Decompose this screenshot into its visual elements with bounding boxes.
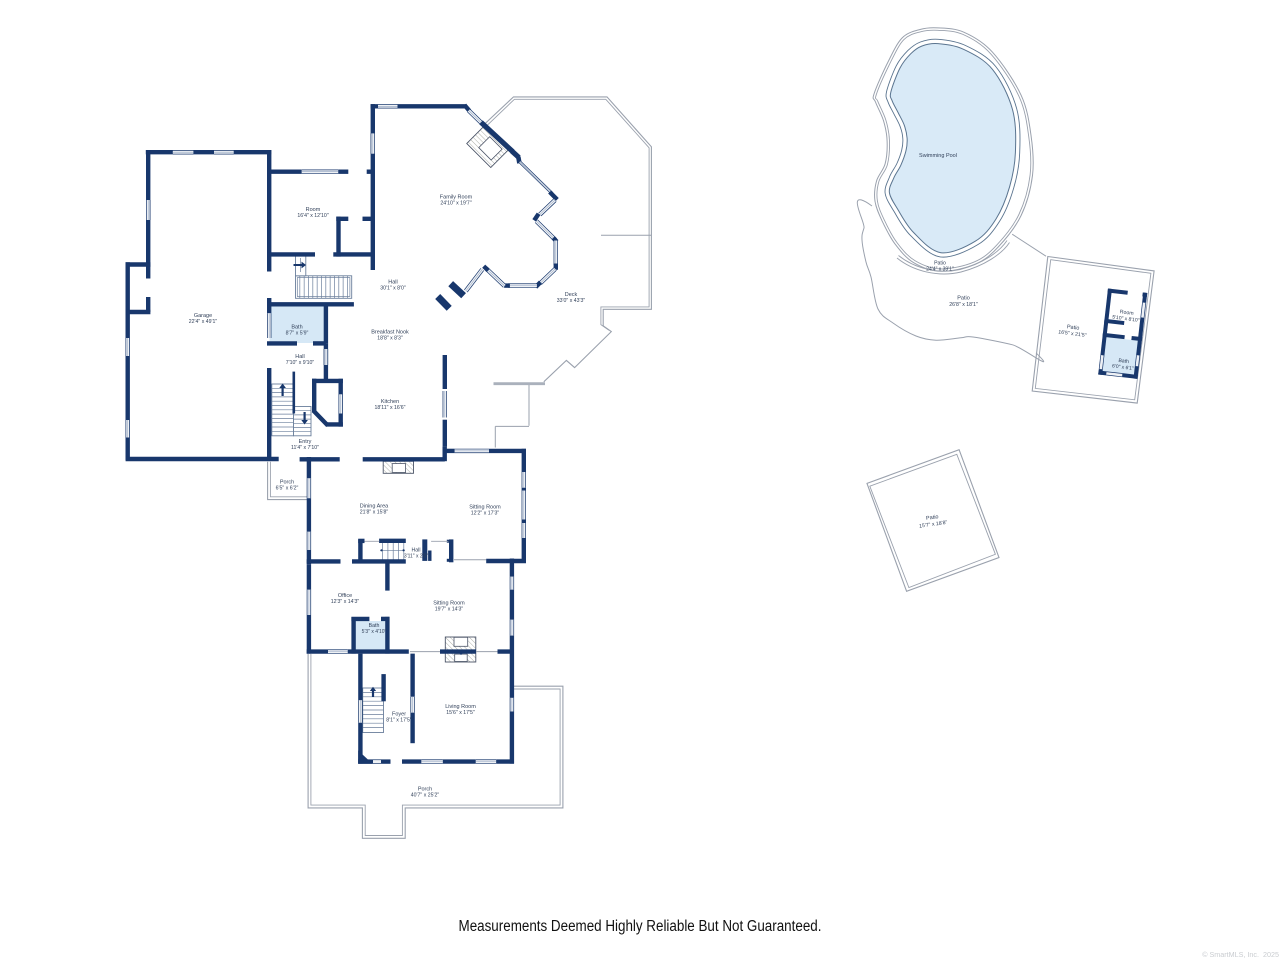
svg-text:33'0" x 43'3": 33'0" x 43'3" xyxy=(557,298,586,304)
svg-text:22'4" x 49'1": 22'4" x 49'1" xyxy=(189,319,218,325)
svg-text:Entry: Entry xyxy=(299,439,312,445)
svg-text:Living Room: Living Room xyxy=(445,704,476,710)
svg-text:19'7" x 14'3": 19'7" x 14'3" xyxy=(435,607,464,613)
svg-text:30'1" x 8'0": 30'1" x 8'0" xyxy=(380,286,406,292)
svg-text:7'10" x 9'10": 7'10" x 9'10" xyxy=(286,360,315,366)
svg-text:16'4" x 12'10": 16'4" x 12'10" xyxy=(297,213,328,219)
svg-text:Patio: Patio xyxy=(957,296,970,302)
svg-text:15'7" x 18'8": 15'7" x 18'8" xyxy=(919,520,948,530)
svg-text:Porch: Porch xyxy=(280,480,294,486)
svg-text:Hall: Hall xyxy=(388,280,397,286)
svg-text:Office: Office xyxy=(338,593,352,599)
svg-text:6'5" x 6'2": 6'5" x 6'2" xyxy=(276,486,299,492)
svg-text:Swimming Pool: Swimming Pool xyxy=(919,153,957,159)
svg-text:Foyer: Foyer xyxy=(392,712,406,718)
svg-text:26'8" x 18'1": 26'8" x 18'1" xyxy=(949,302,978,308)
svg-text:Sitting Room: Sitting Room xyxy=(469,505,501,511)
svg-text:12'2" x 17'3": 12'2" x 17'3" xyxy=(471,511,500,517)
svg-text:Room: Room xyxy=(306,207,321,213)
svg-text:24'10" x 19'7": 24'10" x 19'7" xyxy=(440,201,471,207)
svg-text:Bath: Bath xyxy=(291,325,302,331)
svg-text:Breakfast Nook: Breakfast Nook xyxy=(371,330,409,336)
svg-text:16'5" x 21'5": 16'5" x 21'5" xyxy=(1058,329,1087,339)
svg-text:Sitting Room: Sitting Room xyxy=(433,601,465,607)
svg-text:18'8" x 8'3": 18'8" x 8'3" xyxy=(377,336,403,342)
svg-text:8'7" x 5'9": 8'7" x 5'9" xyxy=(286,331,309,337)
svg-text:Garage: Garage xyxy=(194,313,212,319)
svg-text:5'3" x 4'10": 5'3" x 4'10" xyxy=(362,629,387,635)
svg-text:40'7" x 25'2": 40'7" x 25'2" xyxy=(411,793,440,799)
svg-text:15'6" x 17'5": 15'6" x 17'5" xyxy=(446,710,475,716)
svg-text:11'4" x 7'10": 11'4" x 7'10" xyxy=(291,445,319,451)
svg-text:Porch: Porch xyxy=(418,787,432,793)
svg-text:Hall: Hall xyxy=(295,354,304,360)
svg-text:18'11" x 16'6": 18'11" x 16'6" xyxy=(375,405,406,411)
svg-text:12'3" x 14'3": 12'3" x 14'3" xyxy=(331,599,360,605)
svg-text:24'4" x 39'1": 24'4" x 39'1" xyxy=(926,266,954,272)
svg-text:Kitchen: Kitchen xyxy=(381,399,399,405)
svg-text:8'1" x 17'5": 8'1" x 17'5" xyxy=(386,718,412,724)
svg-text:Dining Area: Dining Area xyxy=(360,504,389,510)
svg-text:Family Room: Family Room xyxy=(440,195,473,201)
svg-text:Deck: Deck xyxy=(565,292,578,298)
svg-text:21'8" x 15'8": 21'8" x 15'8" xyxy=(360,510,389,516)
svg-text:3'11" x 2'0": 3'11" x 2'0" xyxy=(404,553,428,559)
